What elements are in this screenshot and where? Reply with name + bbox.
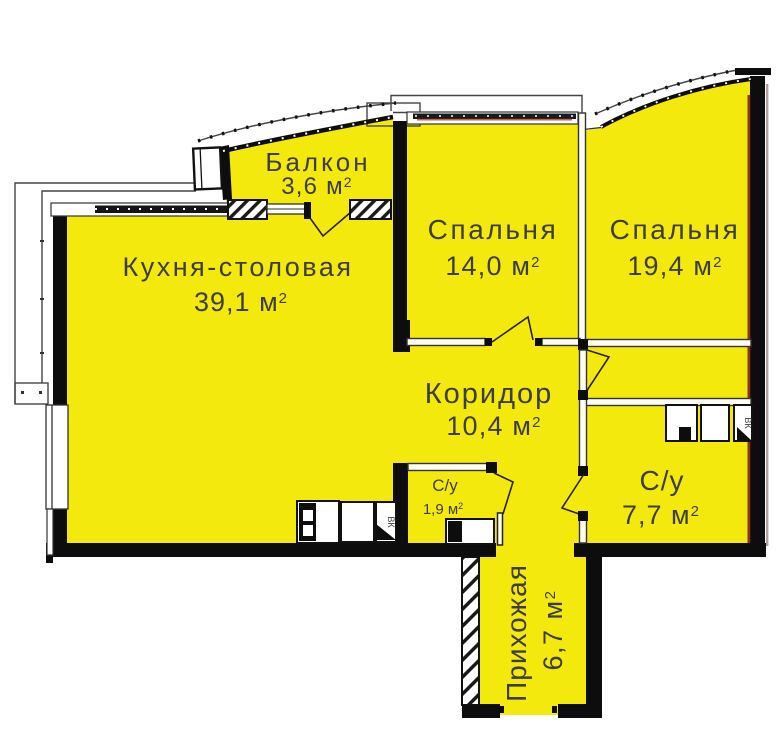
svg-text:3,6 м2: 3,6 м2	[281, 173, 353, 200]
svg-text:7,7 м2: 7,7 м2	[622, 500, 700, 530]
svg-text:Кухня-столовая: Кухня-столовая	[123, 252, 354, 282]
svg-text:ВК: ВК	[386, 516, 396, 528]
svg-text:10,4 м2: 10,4 м2	[446, 411, 541, 441]
svg-text:19,4 м2: 19,4 м2	[627, 251, 722, 281]
svg-text:1,9 м2: 1,9 м2	[423, 501, 463, 518]
svg-text:С/у: С/у	[432, 476, 458, 495]
svg-text:Прихожая: Прихожая	[501, 564, 532, 702]
svg-text:С/у: С/у	[640, 465, 685, 496]
svg-text:Спальня: Спальня	[428, 214, 559, 245]
svg-text:ВК: ВК	[743, 417, 753, 429]
svg-text:Спальня: Спальня	[610, 214, 741, 245]
svg-text:Коридор: Коридор	[425, 378, 554, 410]
svg-text:6,7 м2: 6,7 м2	[538, 590, 568, 671]
svg-text:14,0 м2: 14,0 м2	[445, 251, 540, 281]
svg-text:39,1 м2: 39,1 м2	[194, 287, 288, 317]
